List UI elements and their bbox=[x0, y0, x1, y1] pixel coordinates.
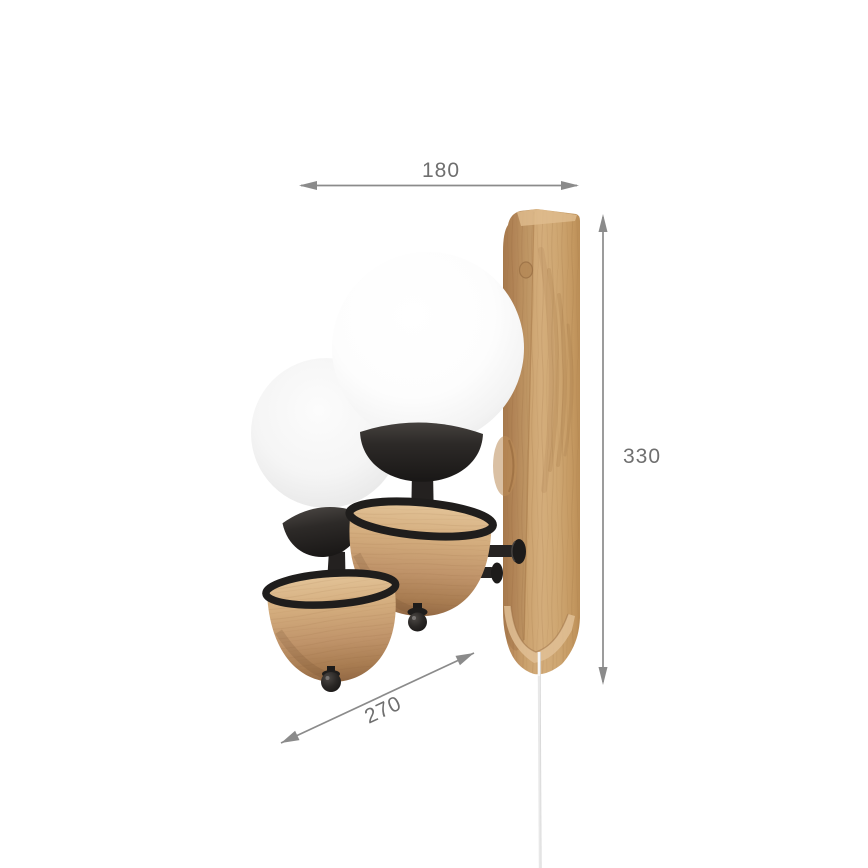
depth-arrowhead-left bbox=[281, 731, 300, 743]
height-arrowhead-bottom bbox=[599, 667, 608, 685]
opal-glass-globe-front bbox=[332, 252, 524, 444]
product-dimension-image: 180 330 270 bbox=[0, 0, 868, 868]
width-dimension: 180 bbox=[299, 159, 579, 190]
lower-pivot-disc bbox=[491, 563, 503, 584]
width-arrowhead-right bbox=[561, 181, 579, 190]
depth-arrowhead-right bbox=[456, 653, 475, 665]
wood-backplate bbox=[493, 209, 580, 674]
height-dimension-label: 330 bbox=[623, 445, 661, 468]
pull-cord bbox=[539, 652, 541, 868]
height-arrowhead-top bbox=[599, 214, 608, 232]
wood-plug bbox=[520, 262, 533, 278]
depth-dimension-label: 270 bbox=[361, 692, 405, 729]
width-dimension-label: 180 bbox=[422, 159, 460, 182]
width-arrowhead-left bbox=[299, 181, 317, 190]
scene: 180 330 270 bbox=[0, 0, 868, 868]
height-dimension: 330 bbox=[599, 214, 662, 685]
